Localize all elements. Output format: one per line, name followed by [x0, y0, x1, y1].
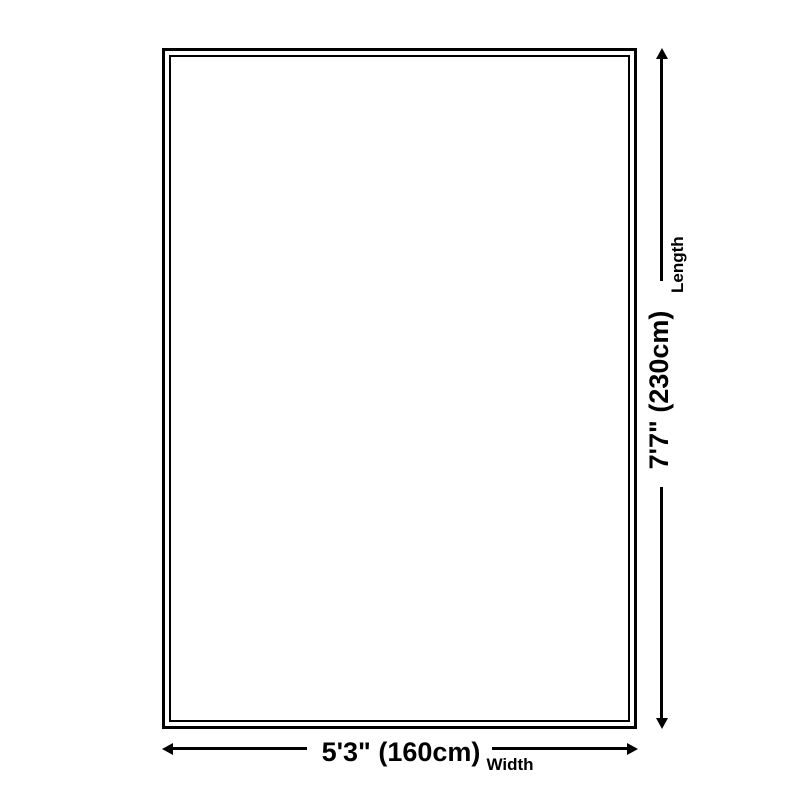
arrow-left-icon — [162, 743, 173, 755]
width-arrow-line-left — [173, 747, 307, 750]
arrow-down-icon — [656, 718, 668, 729]
rug-outline — [162, 48, 637, 729]
length-arrow-line-bottom — [660, 487, 663, 718]
length-axis-label: Length — [668, 239, 688, 293]
rug-inner-outline — [169, 55, 630, 722]
width-axis-label: Width — [475, 755, 545, 775]
width-value: 5'3" (160cm) — [311, 734, 491, 770]
arrow-up-icon — [656, 48, 668, 59]
arrow-right-icon — [627, 743, 638, 755]
width-arrow-line-right — [492, 747, 627, 750]
length-value: 7'7" (230cm) — [641, 305, 677, 475]
length-arrow-line-top — [660, 59, 663, 281]
